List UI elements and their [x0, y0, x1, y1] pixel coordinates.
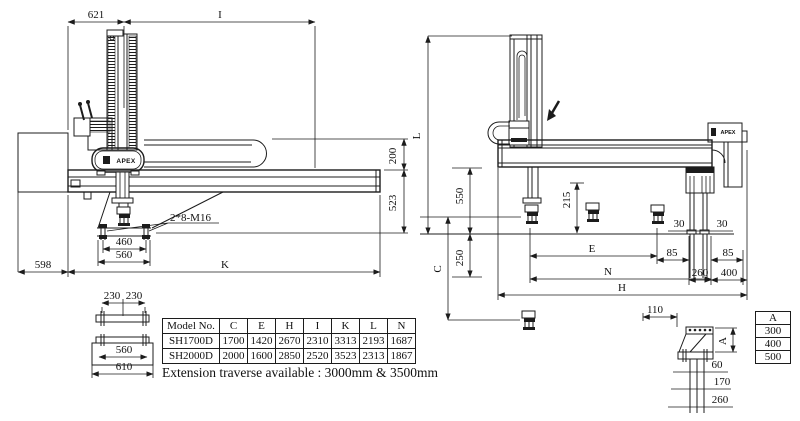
value-cell: 2520 [304, 349, 332, 364]
model-name: SH1700D [163, 334, 220, 349]
value-cell: 2313 [360, 349, 388, 364]
dim-C: C [432, 265, 444, 272]
engineering-drawing-page: APEX [0, 0, 800, 421]
a-table-header: A [756, 312, 791, 325]
apex-logo-mark [103, 156, 110, 164]
right-view-machine: APEX [420, 35, 747, 330]
right-view-dimensions: L C 550 250 215 30 30 85 85 E N [411, 36, 747, 320]
left-view-machine: APEX [18, 30, 380, 272]
value-cell: 2850 [276, 349, 304, 364]
a-value-table: A 300 400 500 [755, 311, 791, 364]
dim-170: 170 [714, 376, 731, 388]
col-header-n: N [388, 319, 416, 334]
a-table-value: 400 [756, 338, 791, 351]
stroke-direction-arrow [547, 101, 559, 121]
dim-A: A [717, 337, 729, 345]
dim-260: 260 [692, 267, 709, 279]
dim-I: I [218, 9, 222, 21]
col-header-e: E [248, 319, 276, 334]
col-header-c: C [220, 319, 248, 334]
dim-215: 215 [561, 191, 573, 208]
spec-table-row-sh2000d: SH2000D 2000 1600 2850 2520 3523 2313 18… [163, 349, 416, 364]
anchor-rods [690, 359, 704, 413]
value-cell: 1867 [388, 349, 416, 364]
traverse-beam [144, 140, 267, 167]
gripper-icon [117, 207, 130, 226]
value-cell: 1687 [388, 334, 416, 349]
a-table-value: 300 [756, 325, 791, 338]
dim-L: L [411, 132, 423, 139]
model-name: SH2000D [163, 349, 220, 364]
value-cell: 2193 [360, 334, 388, 349]
dim-60: 60 [712, 359, 724, 371]
support-legs [686, 167, 714, 278]
dim-N: N [604, 266, 612, 278]
dim-K: K [221, 259, 229, 271]
value-cell: 2000 [220, 349, 248, 364]
dim-400: 400 [721, 267, 738, 279]
value-cell: 1700 [220, 334, 248, 349]
base-beam [68, 170, 380, 192]
dim-bolt-callout: 2*8-M16 [170, 212, 211, 224]
value-cell: 1420 [248, 334, 276, 349]
dim-260-detail: 260 [712, 394, 729, 406]
dim-85-right: 85 [723, 247, 735, 259]
dim-560-detail: 560 [116, 344, 133, 356]
a-table-value: 500 [756, 351, 791, 364]
dim-E: E [589, 243, 596, 255]
dim-110: 110 [647, 304, 664, 316]
dim-250: 250 [454, 249, 466, 266]
dim-610-detail: 610 [116, 361, 133, 373]
carriage-body: APEX [92, 148, 144, 175]
cable-chain [517, 51, 527, 120]
dim-523: 523 [387, 194, 399, 211]
dim-200: 200 [387, 147, 399, 164]
dim-30-left: 30 [674, 218, 686, 230]
left-view-dimensions: 621 I 200 523 598 K 460 560 2*8-M16 [18, 9, 408, 277]
value-cell: 3313 [332, 334, 360, 349]
dim-H: H [618, 282, 626, 294]
dim-230-left: 230 [104, 290, 121, 302]
gripper-icon-lowered [522, 311, 535, 330]
extension-note: Extension traverse available : 3000mm & … [162, 365, 438, 381]
apex-logo-text: APEX [116, 158, 136, 165]
dim-230-right: 230 [126, 290, 143, 302]
dim-85-left: 85 [667, 247, 679, 259]
base-plate-detail: 230 230 560 610 [92, 290, 153, 378]
value-cell: 2670 [276, 334, 304, 349]
dim-460: 460 [116, 236, 133, 248]
value-cell: 2310 [304, 334, 332, 349]
gripper-icon [525, 205, 538, 224]
gripper-icon [586, 203, 599, 222]
col-header-model: Model No. [163, 319, 220, 334]
spec-table-row-sh1700d: SH1700D 1700 1420 2670 2310 3313 2193 16… [163, 334, 416, 349]
dim-30-right: 30 [717, 218, 729, 230]
apex-logo-mark [711, 128, 716, 136]
col-header-i: I [304, 319, 332, 334]
platen-outline [18, 133, 68, 192]
vertical-arm [112, 172, 133, 226]
right-view: APEX L C [411, 35, 747, 330]
value-cell: 3523 [332, 349, 360, 364]
gripper-icon [651, 205, 664, 224]
dim-621: 621 [88, 9, 105, 21]
drive-motor [74, 100, 112, 150]
value-cell: 1600 [248, 349, 276, 364]
dim-560: 560 [116, 249, 133, 261]
apex-logo-text-2: APEX [721, 130, 736, 136]
leg-bracket-detail: 110 A 60 170 260 [643, 304, 737, 413]
left-view: APEX [18, 9, 408, 277]
col-header-k: K [332, 319, 360, 334]
col-header-l: L [360, 319, 388, 334]
spec-table-header-row: Model No. C E H I K L N [163, 319, 416, 334]
spec-table: Model No. C E H I K L N SH1700D 1700 142… [162, 318, 416, 364]
dim-598: 598 [35, 259, 52, 271]
col-header-h: H [276, 319, 304, 334]
dim-550: 550 [454, 187, 466, 204]
